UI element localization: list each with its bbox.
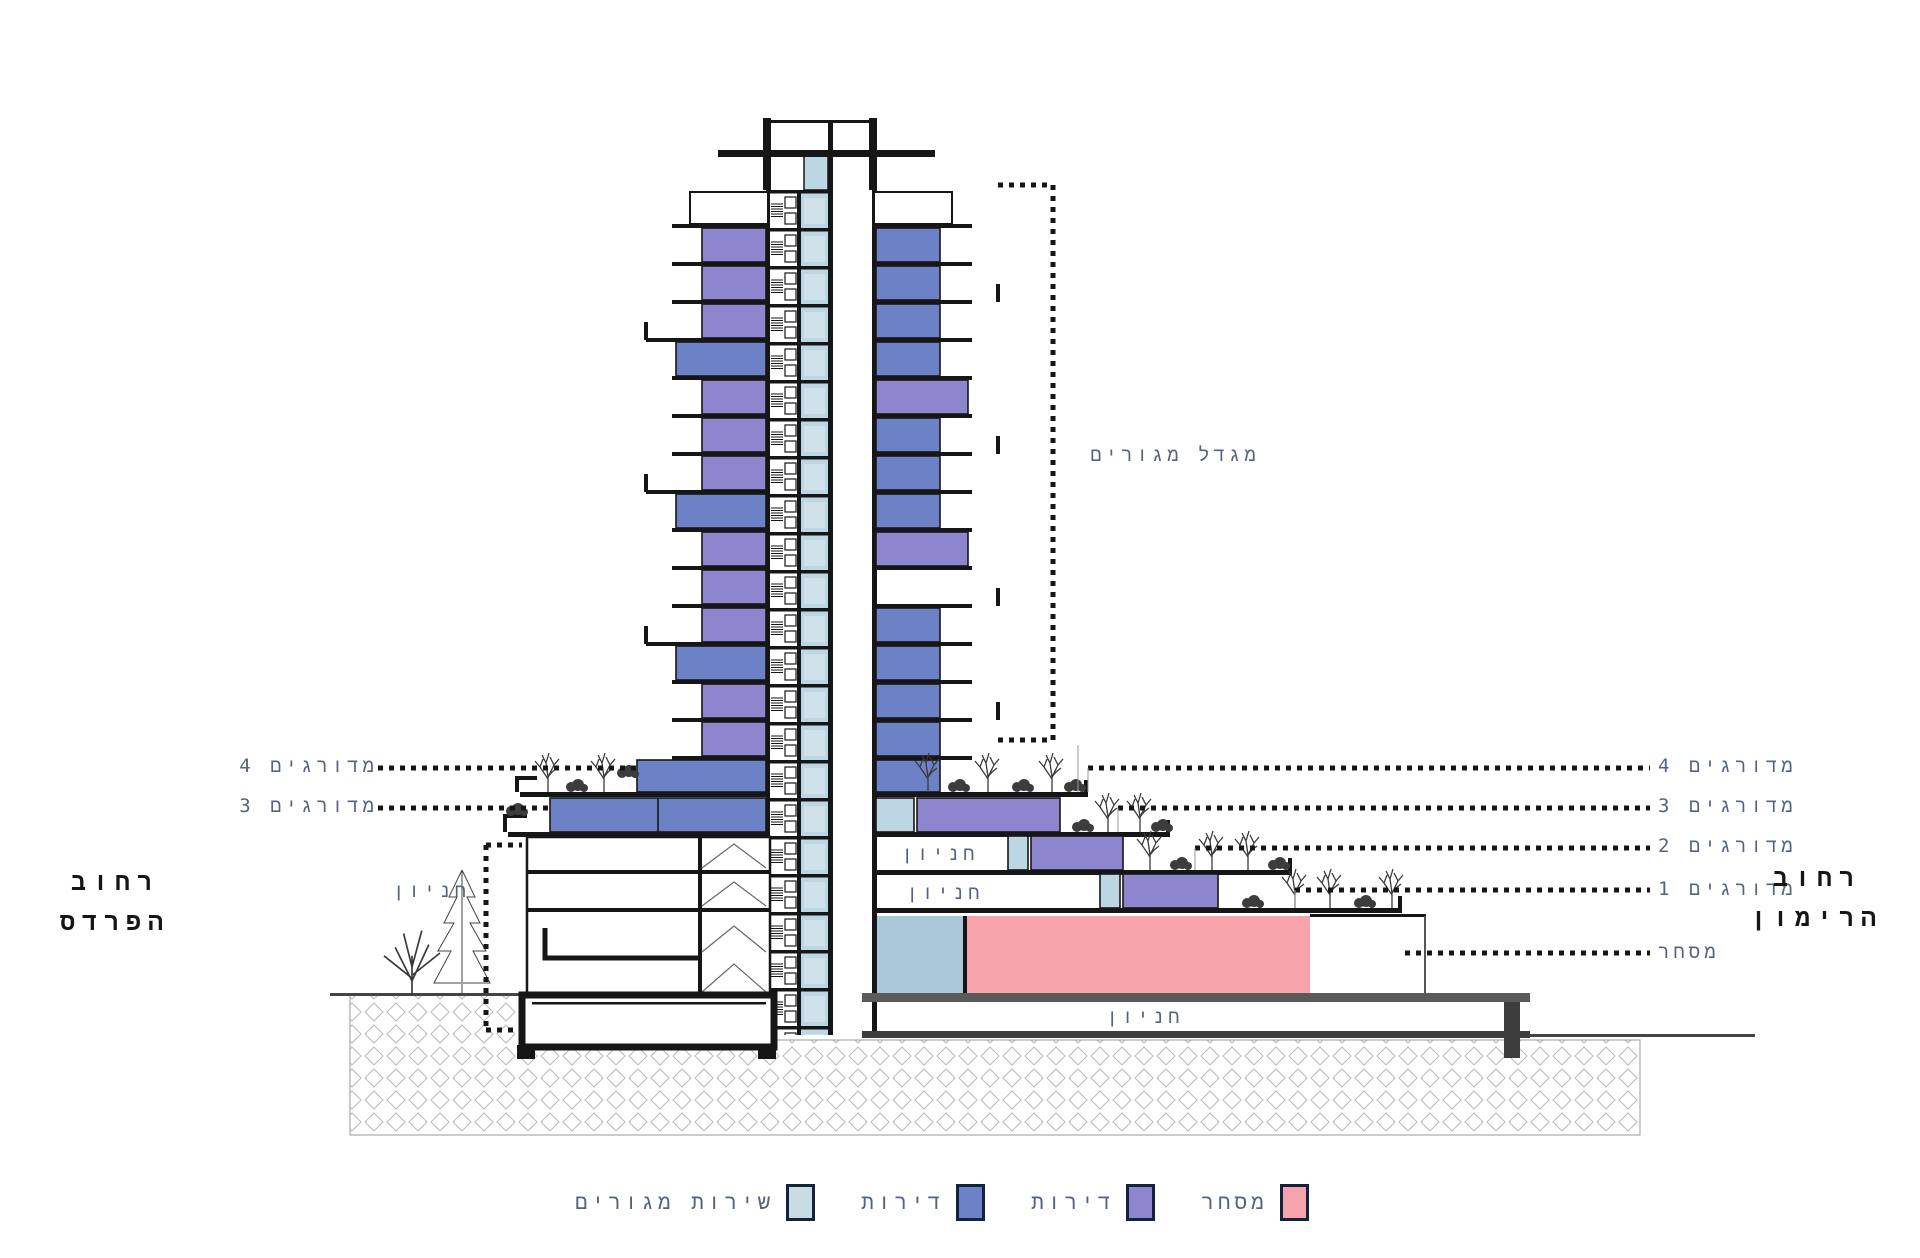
legend-swatch-apartments-blue xyxy=(956,1184,985,1221)
label-residential-tower: מגדל מגורים xyxy=(1075,444,1275,467)
building-section-svg xyxy=(0,0,1920,1258)
street-harimon-line1: רחוב xyxy=(1732,858,1902,898)
legend-label-residential-services: שירות מגורים xyxy=(575,1190,774,1216)
label-right-terraced-2: מדורגים 2 xyxy=(1658,835,1797,858)
legend-item-apartments-blue: דירות xyxy=(861,1184,985,1221)
label-left-terraced-4: מדורגים 4 xyxy=(239,755,378,778)
street-hapardes-line2: הפרדס xyxy=(35,902,195,942)
tower-right-wing xyxy=(872,192,1000,792)
commerce-block xyxy=(967,916,1310,993)
legend-label-apartments-purple: דירות xyxy=(1031,1190,1114,1216)
label-parking-basement: חניון xyxy=(1080,1006,1210,1029)
label-parking-upper: חניון xyxy=(880,843,1000,866)
street-hapardes-line1: רחוב xyxy=(35,862,195,902)
legend-item-commerce: מסחר xyxy=(1201,1184,1308,1221)
label-left-parking: חניון xyxy=(393,880,470,903)
legend-item-residential-services: שירות מגורים xyxy=(575,1184,815,1221)
legend-item-apartments-purple: דירות xyxy=(1031,1184,1155,1221)
label-left-terraced-3: מדורגים 3 xyxy=(239,795,378,818)
architectural-section-page: מדורגים 4 מדורגים 3 חניון מדורגים 4 מדור… xyxy=(0,0,1920,1258)
label-right-commerce: מסחר xyxy=(1658,941,1720,964)
legend-swatch-commerce xyxy=(1280,1184,1309,1221)
tower-left-wing xyxy=(644,192,770,760)
legend-swatch-apartments-purple xyxy=(1126,1184,1155,1221)
street-label-harimon: רחוב הרימון xyxy=(1732,858,1902,938)
street-harimon-line2: הרימון xyxy=(1732,898,1902,938)
legend: שירות מגורים דירות דירות מסחר xyxy=(575,1184,1309,1221)
services-block xyxy=(877,916,963,993)
legend-swatch-residential-services xyxy=(786,1184,815,1221)
left-terraced-levels xyxy=(505,760,776,1059)
label-parking-lower: חניון xyxy=(880,882,1010,905)
label-right-terraced-4: מדורגים 4 xyxy=(1658,755,1797,778)
legend-label-commerce: מסחר xyxy=(1201,1190,1267,1216)
label-right-terraced-3: מדורגים 3 xyxy=(1658,795,1797,818)
street-label-hapardes: רחוב הפרדס xyxy=(35,862,195,942)
legend-label-apartments-blue: דירות xyxy=(861,1190,944,1216)
